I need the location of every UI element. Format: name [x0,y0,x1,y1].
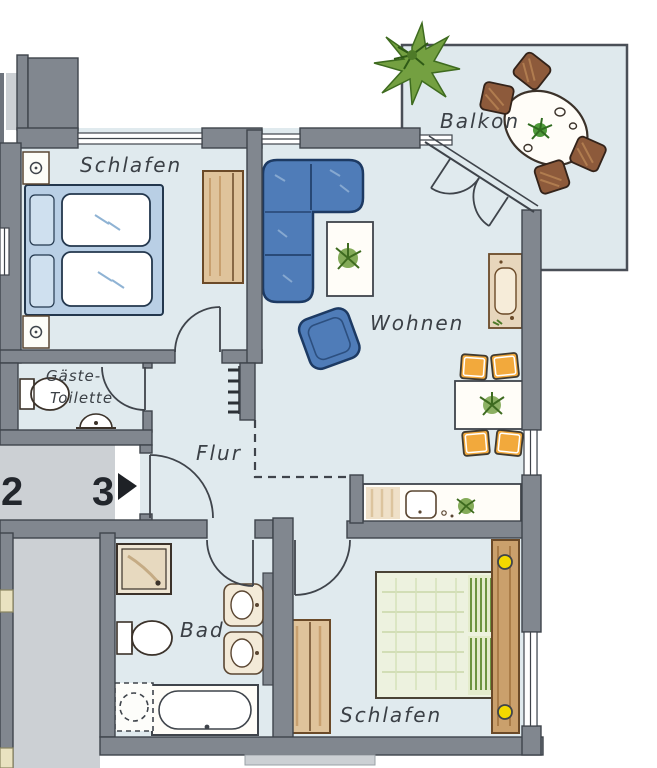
unit-number-left: 2 [1,470,23,514]
label-bedroom-bottom: Schlafen [340,703,442,727]
bed-lamp-top [498,555,512,569]
window-living-left [262,134,300,144]
nightstand-top [23,152,49,184]
washbasin-2 [224,632,263,674]
bed-lamp-bottom [498,705,512,719]
double-bed-top [25,185,163,315]
bath-toilet [117,621,172,655]
window-stairwell-2 [0,748,13,768]
wardrobe-top [203,171,243,283]
label-living: Wohnen [370,311,464,335]
window-bedroom-bottom [524,632,537,726]
nightstand-bottom [23,316,49,348]
wardrobe-bottom [289,620,330,733]
window-left-wall [0,228,9,275]
dining-chair [462,430,490,456]
dining-chair [460,354,488,380]
label-hall: Flur [196,441,242,465]
window-bedroom-top [78,133,202,144]
label-guest-wc-1: Gäste- [46,367,101,385]
sideboard [363,484,521,522]
window-stairwell-1 [0,590,13,612]
dining-chair [495,430,523,457]
washing-machine [115,683,153,731]
washbasin-1 [224,584,263,626]
label-guest-wc-2: Toilette [50,389,113,407]
bathtub [152,685,258,735]
double-bed-bottom [376,572,494,698]
shower [117,544,171,594]
window-living-east [524,430,537,475]
dining-chair [491,353,519,380]
floor-plan: Schlafen Balkon Wohnen Gäste- Toilette F… [0,0,657,768]
stair-corridor [13,533,100,768]
unit-number-current: 3 [92,470,114,514]
label-bath: Bad [180,618,225,642]
label-balcony: Balkon [440,109,520,133]
tv-board [489,254,522,328]
label-bedroom-top: Schlafen [80,153,182,177]
